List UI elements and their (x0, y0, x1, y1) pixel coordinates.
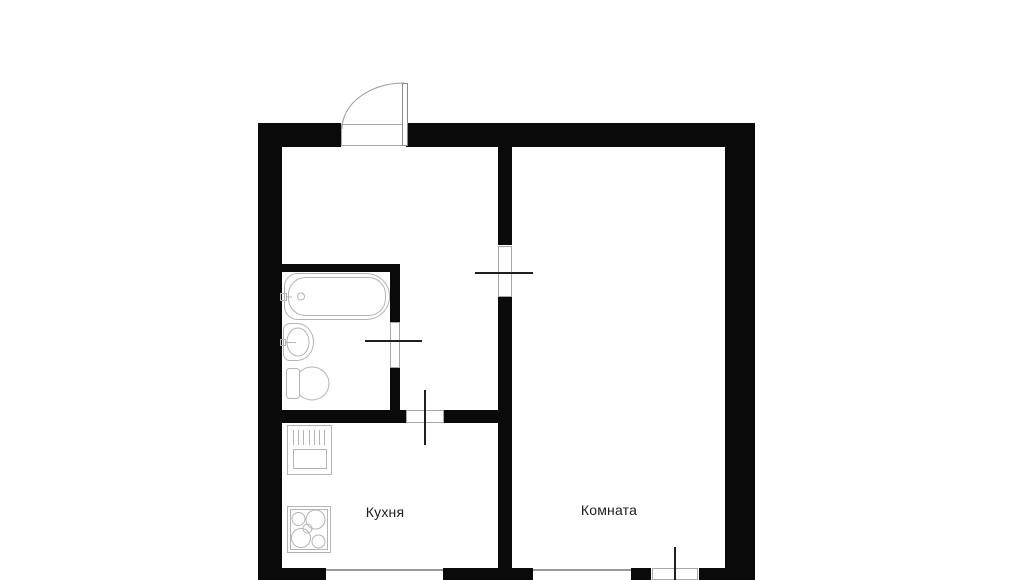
kitchen-sink-unit-icon (288, 426, 332, 475)
wash-basin-icon (281, 324, 314, 361)
stove-icon (288, 507, 331, 553)
room-label: Комната (581, 502, 637, 518)
toilet-icon (287, 367, 330, 400)
bathtub-icon (281, 274, 390, 320)
fixtures-layer (0, 0, 1024, 580)
entry-door-icon (342, 83, 408, 146)
kitchen-label: Кухня (366, 504, 404, 520)
floor-plan: Кухня Комната (0, 0, 1024, 580)
